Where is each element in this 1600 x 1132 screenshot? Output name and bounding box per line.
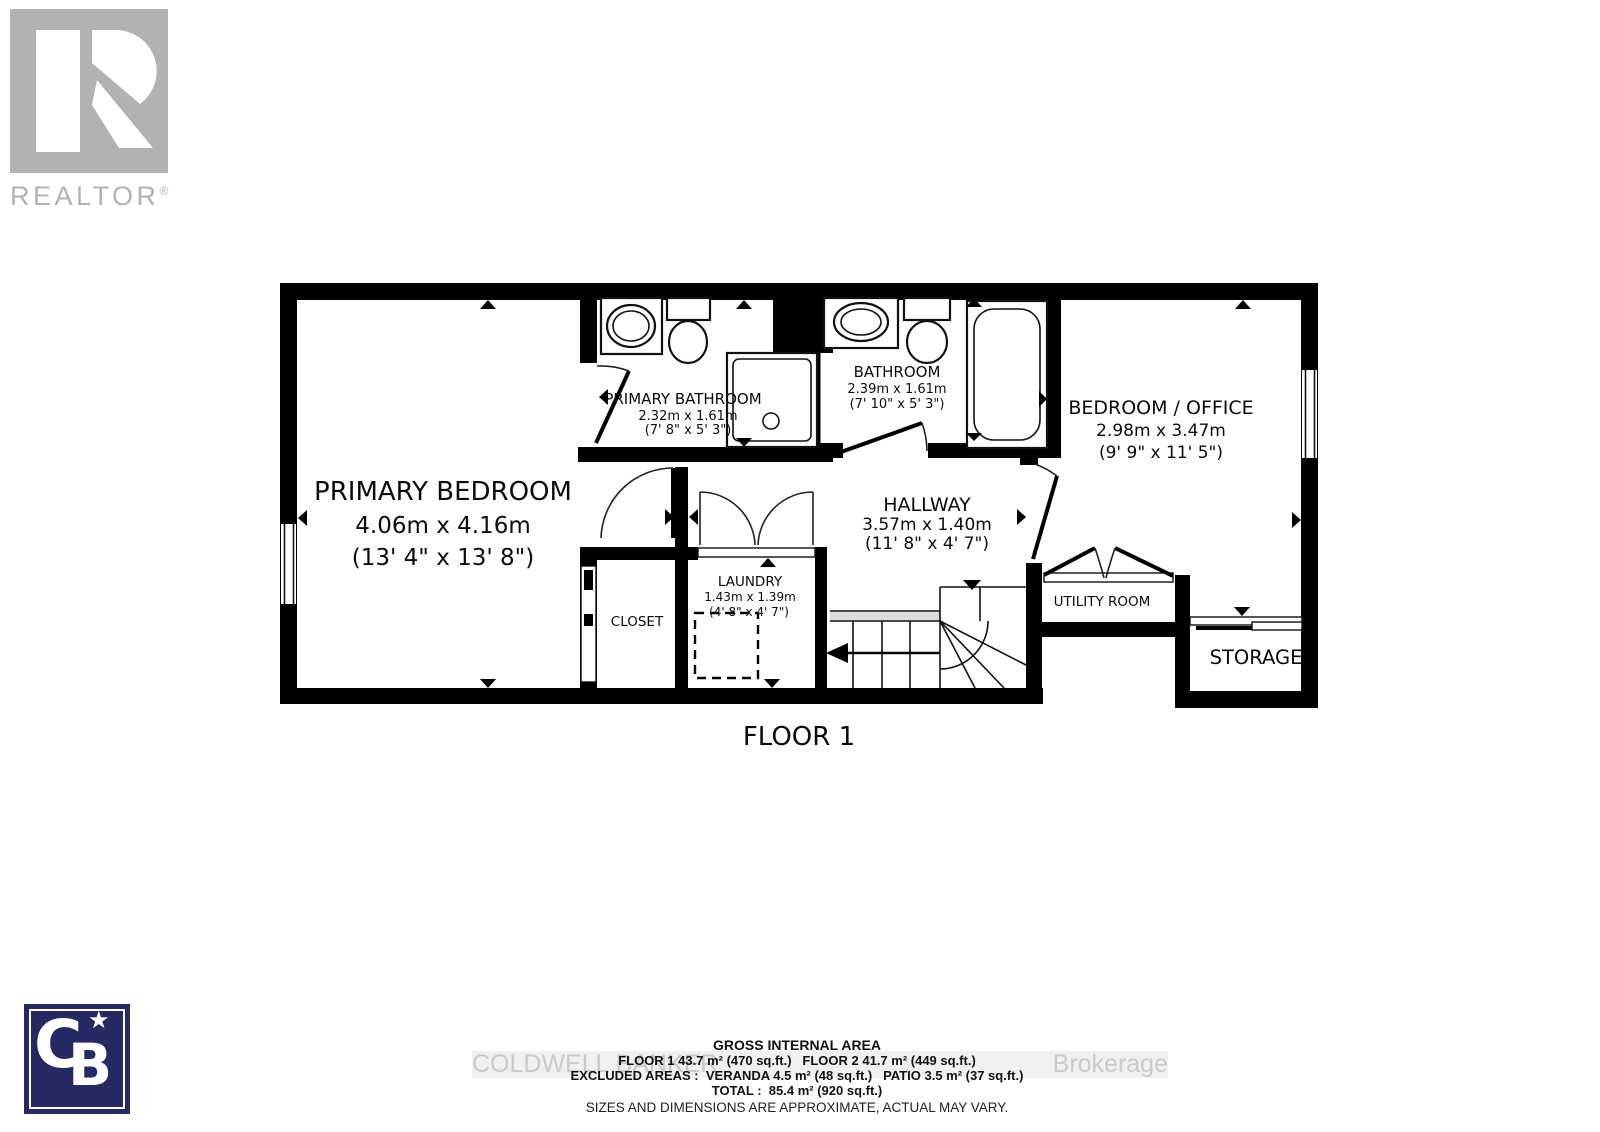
- area-summary: GROSS INTERNAL AREA FLOOR 1 43.7 m² (470…: [497, 1037, 1097, 1116]
- bathroom-imperial: (7' 10" x 5' 3"): [850, 397, 945, 412]
- primary-bedroom-label: PRIMARY BEDROOM: [314, 477, 572, 507]
- laundry-metric: 1.43m x 1.39m: [704, 590, 796, 604]
- cb-letter-b: B: [68, 1036, 112, 1094]
- primary-bedroom-imperial: (13' 4" x 13' 8"): [352, 545, 534, 571]
- primary-bathroom-imperial: (7' 8" x 5' 3"): [645, 423, 732, 438]
- laundry-label: LAUNDRY: [718, 574, 783, 590]
- utility-room-bifold-doors: [1044, 548, 1173, 582]
- window-right-wall: [1301, 364, 1318, 464]
- utility-room-label: UTILITY ROOM: [1054, 594, 1151, 610]
- primary-bathroom-label: PRIMARY BATHROOM: [604, 390, 761, 408]
- cb-star-icon: ★: [88, 1006, 110, 1035]
- storage-sliding-door: [1190, 617, 1302, 630]
- bathroom-label: BATHROOM: [854, 363, 941, 381]
- summary-title: GROSS INTERNAL AREA: [497, 1037, 1097, 1053]
- bathroom-metric: 2.39m x 1.61m: [847, 382, 946, 397]
- bedroom-office-metric: 2.98m x 3.47m: [1096, 421, 1226, 441]
- floorplan-page: REALTOR®: [0, 0, 1600, 1132]
- hallway-label: HALLWAY: [883, 494, 971, 516]
- laundry-imperial: (4' 8" x 4' 7"): [709, 605, 789, 619]
- stairs-direction-arrow: [826, 643, 940, 663]
- bedroom-office-door: [1033, 464, 1057, 559]
- closet-pocket-door: [581, 566, 596, 682]
- hallway-metric: 3.57m x 1.40m: [862, 515, 992, 535]
- staircase: [826, 587, 1026, 688]
- bathtub: [967, 301, 1047, 448]
- summary-excluded: EXCLUDED AREAS : VERANDA 4.5 m² (48 sq.f…: [497, 1068, 1097, 1083]
- primary-bedroom-door: [601, 468, 673, 538]
- primary-bathroom-toilet: [667, 298, 710, 363]
- closet-label: CLOSET: [611, 614, 664, 630]
- bathroom-door: [841, 423, 927, 452]
- bedroom-office-label: BEDROOM / OFFICE: [1068, 397, 1253, 419]
- bedroom-office-imperial: (9' 9" x 11' 5"): [1099, 443, 1223, 463]
- window-left-wall: [280, 518, 297, 610]
- bathroom-sink: [824, 298, 898, 348]
- coldwell-banker-logo: C B ★: [24, 1004, 130, 1114]
- primary-bathroom-sink: [601, 298, 662, 354]
- laundry-appliance-dashed-box: [695, 613, 758, 678]
- laundry-double-doors: [698, 492, 815, 557]
- floor-plan-drawing: PRIMARY BEDROOM 4.06m x 4.16m (13' 4" x …: [0, 0, 1600, 1132]
- primary-bathroom-metric: 2.32m x 1.61m: [638, 409, 737, 424]
- summary-total: TOTAL : 85.4 m² (920 sq.ft.): [497, 1083, 1097, 1098]
- storage-label: STORAGE: [1210, 646, 1303, 669]
- summary-floors: FLOOR 1 43.7 m² (470 sq.ft.) FLOOR 2 41.…: [497, 1053, 1097, 1068]
- primary-bedroom-metric: 4.06m x 4.16m: [355, 513, 530, 539]
- floor-title: FLOOR 1: [743, 722, 855, 752]
- hallway-imperial: (11' 8" x 4' 7"): [865, 534, 989, 554]
- bathroom-toilet: [904, 298, 950, 363]
- summary-disclaimer: SIZES AND DIMENSIONS ARE APPROXIMATE, AC…: [497, 1100, 1097, 1116]
